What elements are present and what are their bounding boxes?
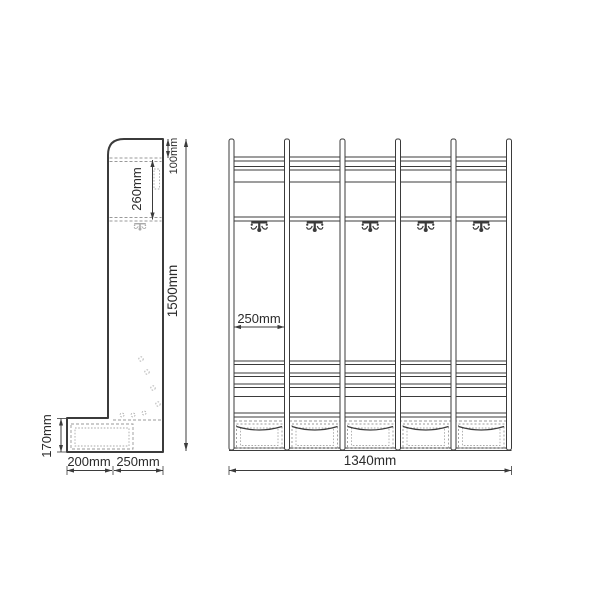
front-post <box>451 139 456 450</box>
dim-bay-width: 250mm <box>234 311 285 329</box>
coat-hook-icon <box>473 222 490 233</box>
technical-drawing-canvas: 100mm 260mm 1500mm 170mm <box>0 0 600 600</box>
hidden-fixing-point <box>120 413 124 417</box>
dim-total-width: 1340mm <box>229 453 512 475</box>
side-hidden-lines <box>71 158 162 449</box>
storage-basket <box>237 424 283 448</box>
dim-label-170mm: 170mm <box>39 414 54 457</box>
dim-hook-zone: 260mm <box>129 160 155 220</box>
dim-label-1500mm: 1500mm <box>165 265 180 318</box>
dim-label-1340mm: 1340mm <box>344 453 397 468</box>
storage-basket <box>348 424 394 448</box>
dim-bench-depth: 200mm 250mm <box>67 454 163 475</box>
front-post <box>285 139 290 450</box>
dim-label-100mm: 100mm <box>168 138 180 175</box>
hidden-fixing-point <box>131 413 135 417</box>
dim-bench-height: 170mm <box>39 414 66 457</box>
front-posts <box>229 139 512 450</box>
front-post <box>507 139 512 450</box>
hidden-basket-inner <box>75 428 129 446</box>
dim-label-200mm: 200mm <box>67 454 110 469</box>
dim-total-height: 1500mm <box>165 139 188 451</box>
dim-label-260mm: 260mm <box>129 167 144 210</box>
hidden-fixing-point <box>139 357 143 361</box>
dim-top-offset: 100mm <box>166 138 180 175</box>
dim-label-250mm-side: 250mm <box>116 454 159 469</box>
hidden-fixing-point <box>145 370 149 374</box>
storage-basket <box>403 424 449 448</box>
coat-hook-icon <box>134 223 146 231</box>
hidden-hook-rail <box>154 169 160 189</box>
hidden-fixing-point <box>142 411 146 415</box>
coat-hook-icon <box>417 222 434 233</box>
hidden-fixing-point <box>151 386 155 390</box>
storage-basket <box>292 424 338 448</box>
hidden-fixing-point <box>156 402 160 406</box>
side-view: 100mm 260mm 1500mm 170mm <box>39 138 188 475</box>
dim-label-250mm-front: 250mm <box>237 311 280 326</box>
storage-basket <box>459 424 505 448</box>
front-baskets <box>237 424 505 448</box>
front-view: 250mm 1340mm <box>229 139 512 475</box>
side-profile-outline <box>67 139 163 452</box>
coat-hook-icon <box>362 222 379 233</box>
side-hidden-hook-icon <box>134 223 146 231</box>
coat-hook-icon <box>306 222 323 233</box>
coat-hook-icon <box>251 222 268 233</box>
front-post <box>340 139 345 450</box>
front-rails <box>229 157 512 451</box>
front-post <box>229 139 234 450</box>
furniture-dimension-drawing: 100mm 260mm 1500mm 170mm <box>0 0 600 600</box>
front-post <box>396 139 401 450</box>
